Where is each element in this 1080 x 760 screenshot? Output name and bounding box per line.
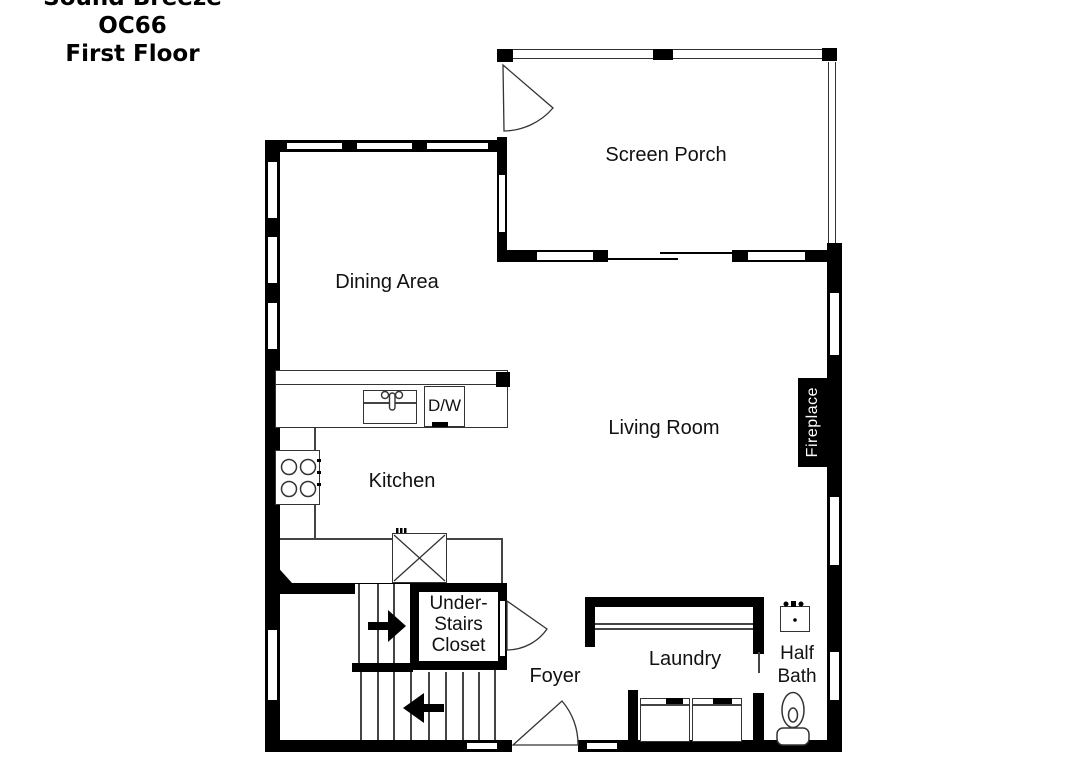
floor-plan: Sound Breeze OC66 First Floor	[0, 0, 1080, 760]
dryer-control	[713, 698, 732, 704]
porch-post	[822, 48, 837, 61]
kitchen-bar-counter	[275, 370, 508, 385]
window	[266, 630, 279, 700]
stair-tread	[358, 584, 360, 663]
window	[537, 250, 593, 262]
room-label-laundry: Laundry	[625, 648, 745, 671]
toilet-icon	[777, 693, 809, 746]
window	[266, 162, 279, 218]
stair-landing-wall	[352, 663, 413, 672]
stair-tread	[462, 672, 464, 740]
door-jamb-line	[758, 652, 760, 673]
stair-tread	[393, 584, 395, 663]
window	[828, 652, 841, 700]
stair-tread	[478, 672, 480, 740]
wall-laundry-top	[585, 597, 763, 607]
room-label-living-room: Living Room	[564, 417, 764, 440]
counter-edge-line	[280, 538, 502, 540]
plan-title-line1: Sound Breeze	[0, 0, 265, 12]
laundry-shelf-line	[595, 623, 755, 625]
dishwasher-control	[432, 422, 448, 427]
stair-tread	[410, 672, 412, 740]
stove	[275, 450, 320, 505]
kitchen-sink	[363, 390, 417, 424]
room-label-foyer: Foyer	[505, 665, 605, 688]
wall-washer-closet	[628, 690, 638, 742]
sliding-door-panel	[660, 252, 732, 254]
porch-post	[732, 250, 748, 262]
window-sidelite	[467, 741, 497, 751]
closet-door-swing	[507, 601, 547, 650]
window-sidelite	[587, 741, 617, 751]
fireplace: Fireplace	[798, 378, 828, 467]
plan-title-line3: First Floor	[0, 40, 265, 68]
porch-post	[593, 250, 608, 262]
porch-door-swing	[503, 65, 553, 131]
dryer-lid-line	[693, 704, 741, 706]
window	[357, 141, 412, 151]
stair-tread	[377, 672, 379, 740]
window	[828, 497, 841, 565]
laundry-shelf-line	[595, 628, 755, 630]
porch-screen-right	[828, 62, 836, 247]
room-label-half-bath: Half Bath	[767, 642, 827, 688]
wall-bath-divider	[753, 597, 764, 654]
stair-tread	[360, 672, 362, 740]
room-label-kitchen: Kitchen	[332, 470, 472, 493]
porch-post	[653, 49, 673, 60]
sink-rim-line	[364, 402, 416, 404]
stair-wall-notch	[355, 584, 412, 594]
stair-tread	[393, 672, 395, 740]
porch-post	[497, 137, 507, 175]
wall-living-top	[497, 250, 537, 262]
plan-title: Sound Breeze OC66 First Floor	[0, 0, 265, 68]
plan-symbols	[0, 0, 1080, 760]
sliding-door-panel	[608, 258, 678, 260]
washer-control	[666, 698, 683, 704]
bath-sink	[780, 606, 810, 632]
window	[497, 175, 507, 232]
stair-edge-line	[494, 670, 496, 740]
front-door-swing	[513, 701, 578, 745]
stairs-up-arrow-icon	[368, 610, 406, 642]
porch-post	[497, 49, 513, 62]
window	[828, 293, 841, 355]
dishwasher-label: D/W	[424, 396, 465, 416]
counter-post	[496, 372, 510, 387]
front-door-opening	[512, 740, 578, 752]
stair-tread	[428, 672, 430, 740]
plan-title-line2: OC66	[0, 12, 265, 40]
stair-tread	[445, 672, 447, 740]
stair-tread	[377, 584, 379, 663]
room-label-under-stairs-closet: Under- Stairs Closet	[416, 593, 501, 656]
wall-laundry-left	[585, 597, 595, 647]
washer-lid-line	[641, 704, 689, 706]
window	[427, 141, 488, 151]
wall-living-top	[805, 250, 842, 262]
window	[266, 237, 279, 283]
wall-bath-divider	[753, 693, 764, 743]
window	[748, 250, 805, 262]
room-label-screen-porch: Screen Porch	[566, 144, 766, 167]
fireplace-label: Fireplace	[804, 387, 822, 457]
window	[266, 303, 279, 349]
refrigerator	[392, 533, 447, 583]
window	[287, 141, 342, 151]
counter-edge-line	[501, 538, 503, 583]
room-label-dining-area: Dining Area	[287, 271, 487, 294]
